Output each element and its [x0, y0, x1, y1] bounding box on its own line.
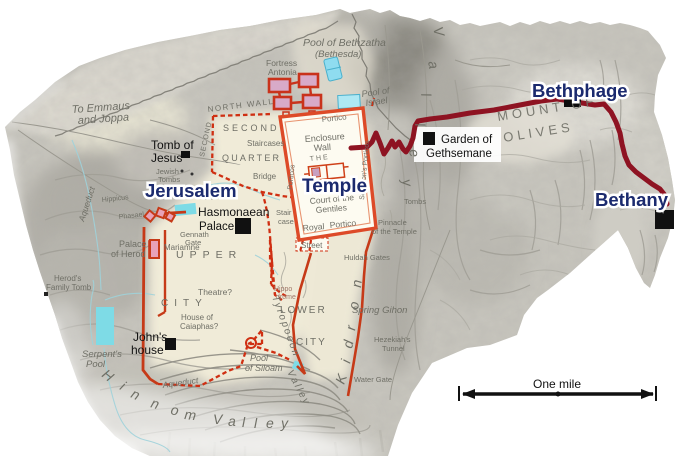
- svg-text:Pool of Bethzatha: Pool of Bethzatha: [303, 37, 386, 49]
- svg-text:Gate: Gate: [185, 238, 201, 247]
- svg-text:Pool: Pool: [250, 353, 269, 363]
- svg-text:Jerusalem: Jerusalem: [145, 180, 237, 201]
- svg-text:Pool: Pool: [86, 359, 106, 370]
- svg-text:Hippo: Hippo: [274, 286, 292, 293]
- svg-text:Theatre?: Theatre?: [198, 287, 232, 297]
- svg-text:of Siloam: of Siloam: [245, 363, 283, 373]
- svg-text:Wall: Wall: [313, 142, 331, 153]
- svg-text:of the Temple: of the Temple: [372, 227, 417, 236]
- svg-text:house: house: [131, 343, 164, 357]
- svg-text:Tunnel: Tunnel: [382, 344, 405, 353]
- svg-text:CITY: CITY: [296, 337, 327, 348]
- svg-text:Pinnacle: Pinnacle: [378, 218, 407, 227]
- svg-text:Hezekiah's: Hezekiah's: [374, 335, 411, 344]
- svg-text:Royal: Royal: [302, 221, 325, 233]
- svg-text:John's: John's: [133, 330, 167, 344]
- svg-text:CITY: CITY: [161, 298, 208, 309]
- svg-text:Tombs: Tombs: [404, 197, 426, 206]
- svg-text:One mile: One mile: [533, 377, 581, 391]
- svg-text:Bethany: Bethany: [595, 189, 669, 210]
- svg-text:case: case: [278, 217, 294, 226]
- svg-text:of Herod: of Herod: [111, 249, 146, 259]
- svg-text:House of: House of: [181, 313, 214, 322]
- svg-text:Bridge: Bridge: [253, 172, 277, 181]
- svg-text:Tomb of: Tomb of: [151, 138, 194, 152]
- svg-text:Palace: Palace: [119, 239, 147, 249]
- svg-text:Garden of: Garden of: [441, 134, 493, 146]
- svg-text:y: y: [280, 415, 289, 431]
- svg-text:Water Gate: Water Gate: [354, 375, 392, 384]
- svg-text:a: a: [228, 413, 236, 429]
- svg-text:Caiaphas?: Caiaphas?: [180, 322, 219, 331]
- svg-text:SECOND: SECOND: [223, 123, 280, 133]
- svg-text:Jesus: Jesus: [151, 151, 182, 165]
- svg-text:m: m: [184, 406, 198, 423]
- svg-text:Bethphage: Bethphage: [532, 80, 628, 101]
- svg-text:Family Tomb: Family Tomb: [46, 283, 92, 292]
- svg-text:e: e: [266, 415, 274, 431]
- svg-text:Herod's: Herod's: [54, 274, 81, 283]
- svg-text:QUARTER: QUARTER: [222, 153, 281, 163]
- svg-text:Temple: Temple: [302, 176, 367, 197]
- svg-text:Stair: Stair: [276, 208, 292, 217]
- svg-text:Hasmonaean: Hasmonaean: [198, 205, 269, 219]
- svg-text:Street: Street: [301, 241, 323, 250]
- svg-text:Antonia: Antonia: [268, 67, 297, 77]
- svg-text:Staircases: Staircases: [247, 139, 284, 148]
- svg-text:Gethsemane: Gethsemane: [426, 148, 492, 160]
- svg-text:(Bethesda): (Bethesda): [315, 49, 361, 60]
- svg-text:Huldah Gates: Huldah Gates: [344, 253, 390, 262]
